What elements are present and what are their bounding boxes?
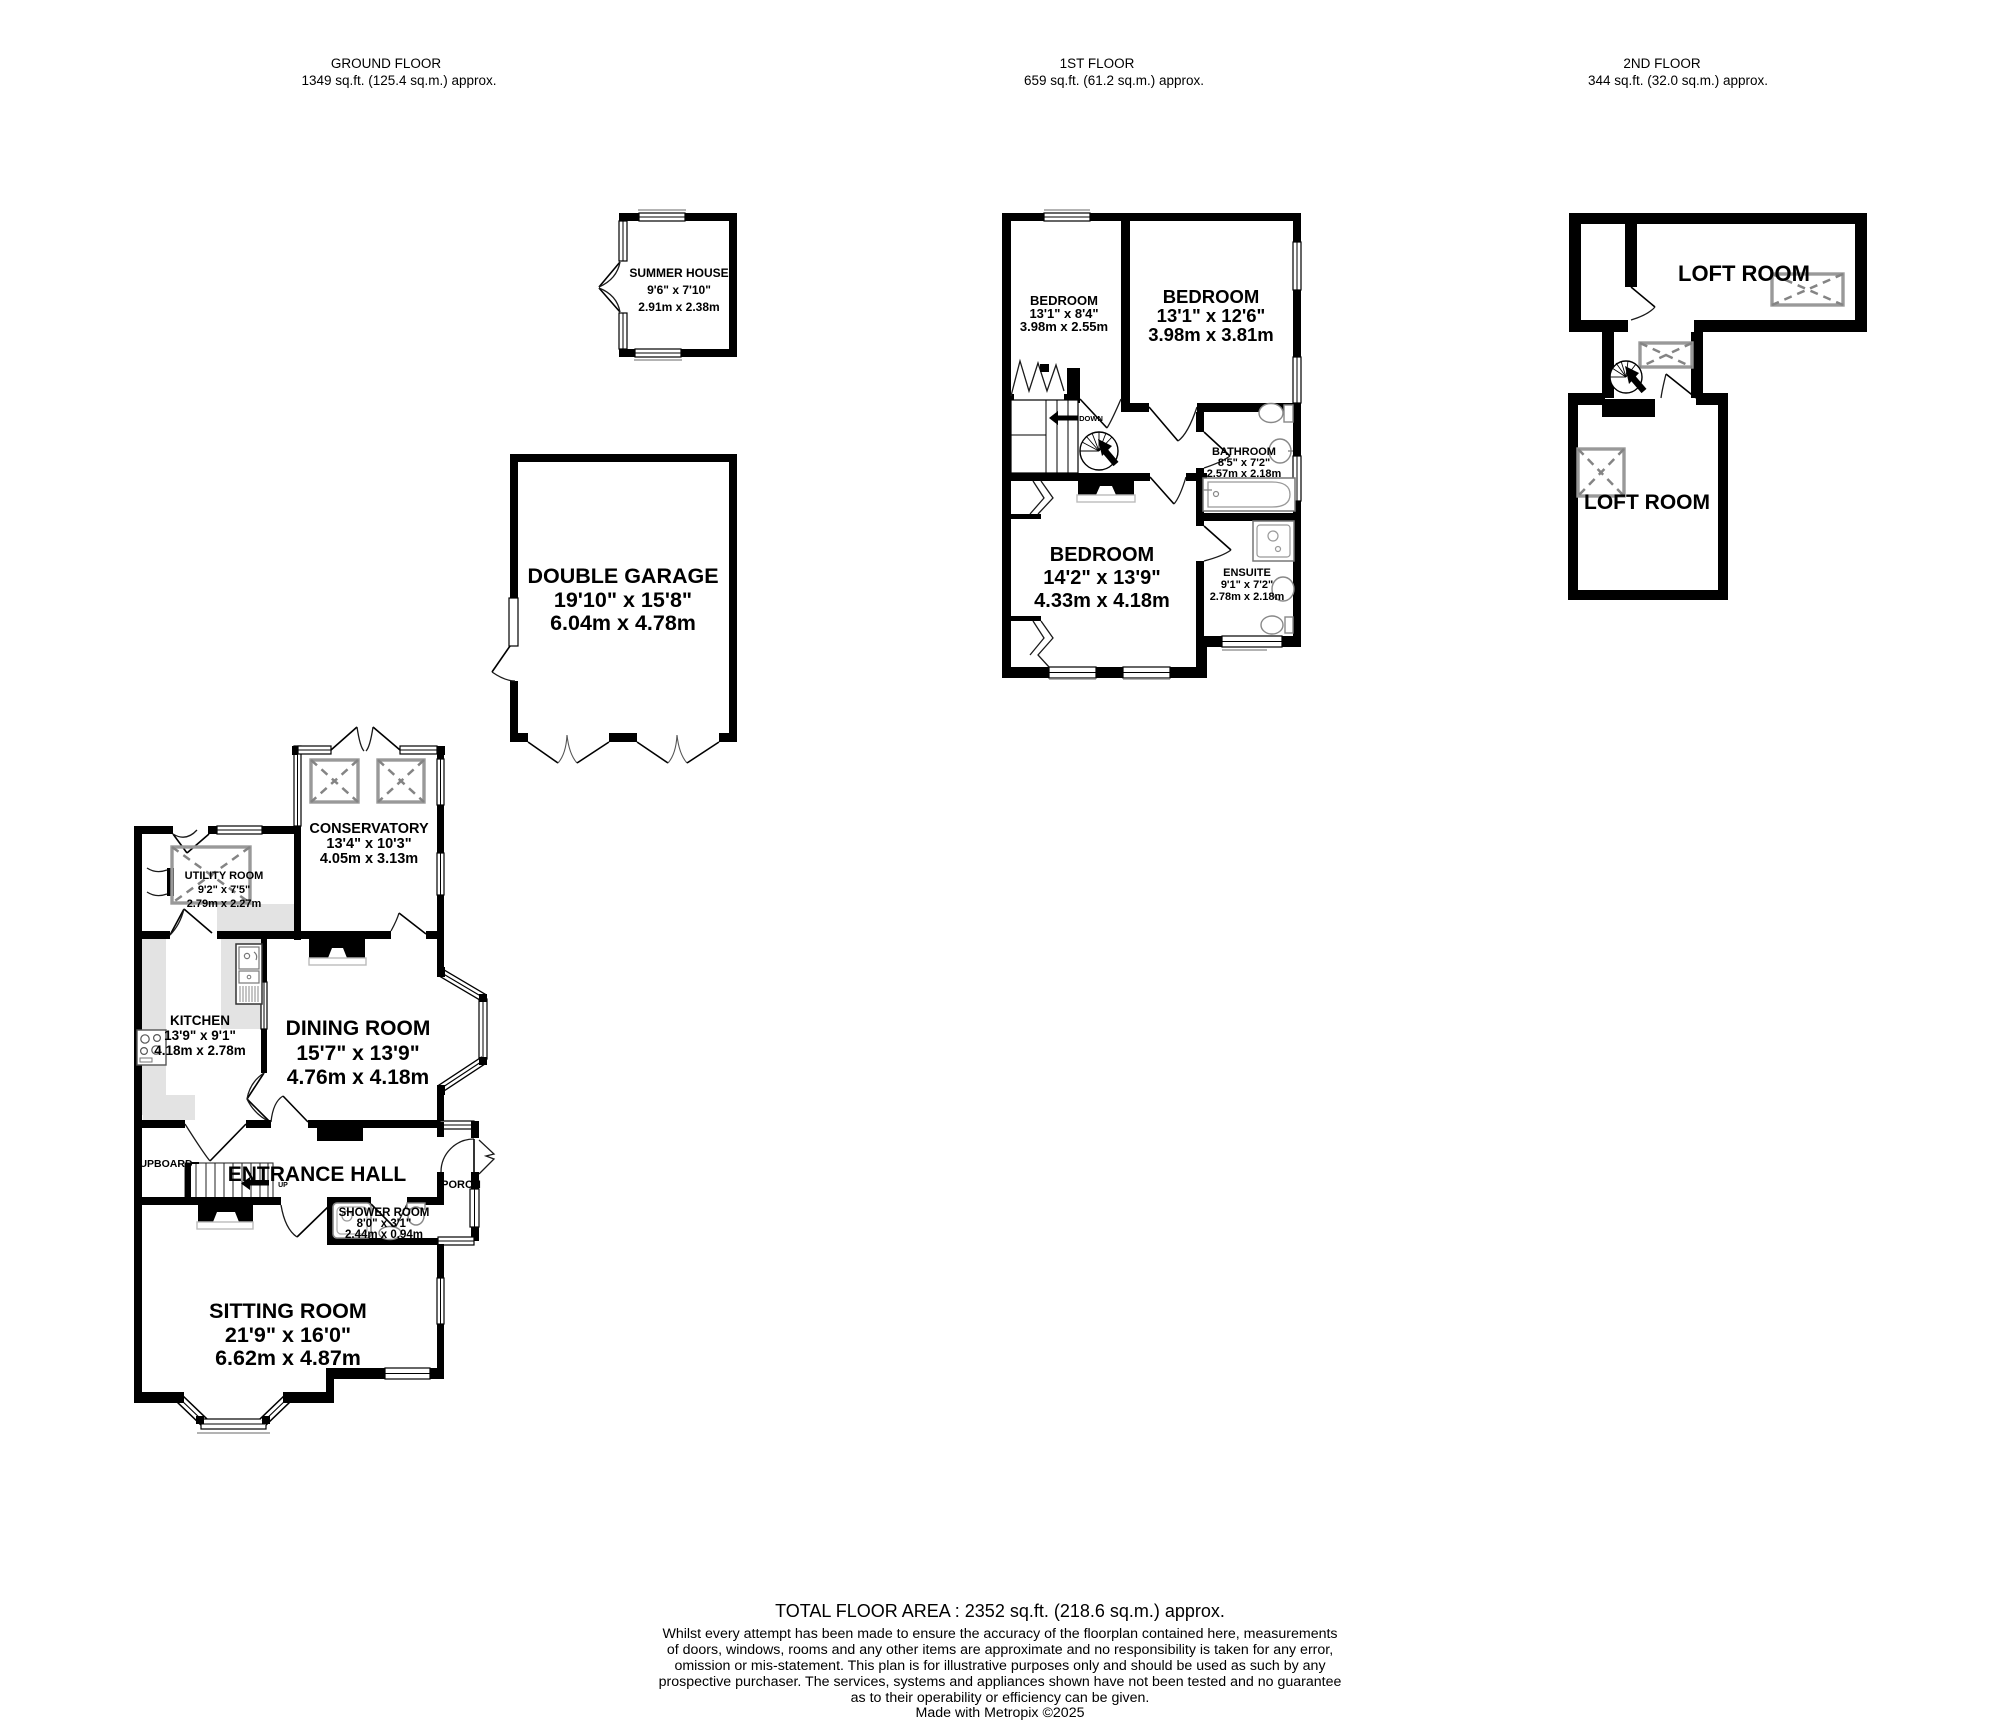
- svg-text:LOFT ROOM: LOFT ROOM: [1584, 491, 1710, 514]
- svg-text:2.78m x 2.18m: 2.78m x 2.18m: [1210, 591, 1285, 603]
- svg-text:DINING ROOM: DINING ROOM: [286, 1017, 431, 1040]
- svg-text:4.76m x 4.18m: 4.76m x 4.18m: [287, 1066, 429, 1089]
- svg-text:2.57m x 2.18m: 2.57m x 2.18m: [1207, 468, 1282, 480]
- svg-text:2ND FLOOR: 2ND FLOOR: [1623, 56, 1701, 71]
- svg-text:15'7" x 13'9": 15'7" x 13'9": [296, 1042, 419, 1065]
- svg-text:ENTRANCE HALL: ENTRANCE HALL: [228, 1163, 407, 1186]
- svg-text:BEDROOM: BEDROOM: [1163, 286, 1260, 307]
- svg-text:Whilst every attempt has been: Whilst every attempt has been made to en…: [662, 1626, 1337, 1642]
- svg-text:BEDROOM: BEDROOM: [1050, 544, 1154, 566]
- svg-text:4.33m x 4.18m: 4.33m x 4.18m: [1034, 590, 1170, 612]
- svg-text:6.04m x 4.78m: 6.04m x 4.78m: [550, 611, 696, 635]
- svg-text:Made with Metropix ©2025: Made with Metropix ©2025: [916, 1705, 1085, 1720]
- svg-text:9'1" x 7'2": 9'1" x 7'2": [1221, 579, 1273, 591]
- svg-text:19'10" x 15'8": 19'10" x 15'8": [554, 588, 692, 612]
- svg-text:PORCH: PORCH: [441, 1179, 481, 1191]
- svg-text:2.91m x 2.38m: 2.91m x 2.38m: [638, 300, 719, 314]
- svg-text:1349 sq.ft. (125.4 sq.m.) appr: 1349 sq.ft. (125.4 sq.m.) approx.: [301, 73, 496, 88]
- svg-text:DOWN: DOWN: [1079, 414, 1103, 423]
- svg-text:13'9" x 9'1": 13'9" x 9'1": [164, 1028, 236, 1043]
- svg-text:4.05m x 3.13m: 4.05m x 3.13m: [320, 851, 418, 867]
- svg-text:SITTING ROOM: SITTING ROOM: [209, 1299, 367, 1323]
- svg-text:GROUND FLOOR: GROUND FLOOR: [331, 56, 442, 71]
- svg-text:21'9" x 16'0": 21'9" x 16'0": [225, 1323, 351, 1347]
- svg-text:3.98m x 2.55m: 3.98m x 2.55m: [1020, 319, 1108, 334]
- svg-text:13'4" x 10'3": 13'4" x 10'3": [326, 836, 411, 852]
- svg-text:2.44m x 0.94m: 2.44m x 0.94m: [345, 1229, 423, 1241]
- svg-text:13'1" x 12'6": 13'1" x 12'6": [1157, 305, 1266, 326]
- svg-text:prospective purchaser. The ser: prospective purchaser. The services, sys…: [659, 1674, 1342, 1690]
- svg-text:659 sq.ft. (61.2 sq.m.) approx: 659 sq.ft. (61.2 sq.m.) approx.: [1024, 73, 1204, 88]
- svg-text:4.18m x 2.78m: 4.18m x 2.78m: [154, 1043, 246, 1058]
- svg-text:DOUBLE GARAGE: DOUBLE GARAGE: [527, 564, 718, 588]
- svg-text:9'2" x 7'5": 9'2" x 7'5": [198, 884, 250, 896]
- svg-text:TOTAL FLOOR AREA : 2352 sq.ft.: TOTAL FLOOR AREA : 2352 sq.ft. (218.6 sq…: [775, 1601, 1225, 1621]
- svg-text:UTILITY ROOM: UTILITY ROOM: [185, 870, 264, 882]
- svg-text:6.62m x 4.87m: 6.62m x 4.87m: [215, 1346, 361, 1370]
- svg-text:of doors, windows, rooms and a: of doors, windows, rooms and any other i…: [667, 1642, 1333, 1658]
- svg-text:ENSUITE: ENSUITE: [1223, 567, 1271, 579]
- svg-text:9'6" x 7'10": 9'6" x 7'10": [647, 283, 711, 297]
- svg-text:UPBOARD: UPBOARD: [139, 1158, 193, 1170]
- svg-text:3.98m x 3.81m: 3.98m x 3.81m: [1148, 324, 1273, 345]
- svg-text:1ST FLOOR: 1ST FLOOR: [1060, 56, 1135, 71]
- svg-text:omission or mis-statement. Thi: omission or mis-statement. This plan is …: [674, 1658, 1326, 1674]
- svg-text:as to their operability or eff: as to their operability or efficiency ca…: [851, 1690, 1150, 1706]
- svg-text:SUMMER HOUSE: SUMMER HOUSE: [629, 266, 728, 280]
- svg-text:KITCHEN: KITCHEN: [170, 1013, 230, 1028]
- svg-text:LOFT ROOM: LOFT ROOM: [1678, 261, 1810, 286]
- svg-text:344 sq.ft. (32.0 sq.m.) approx: 344 sq.ft. (32.0 sq.m.) approx.: [1588, 73, 1768, 88]
- svg-text:CONSERVATORY: CONSERVATORY: [309, 821, 429, 837]
- svg-text:2.79m x 2.27m: 2.79m x 2.27m: [187, 898, 262, 910]
- svg-text:14'2" x 13'9": 14'2" x 13'9": [1043, 567, 1160, 589]
